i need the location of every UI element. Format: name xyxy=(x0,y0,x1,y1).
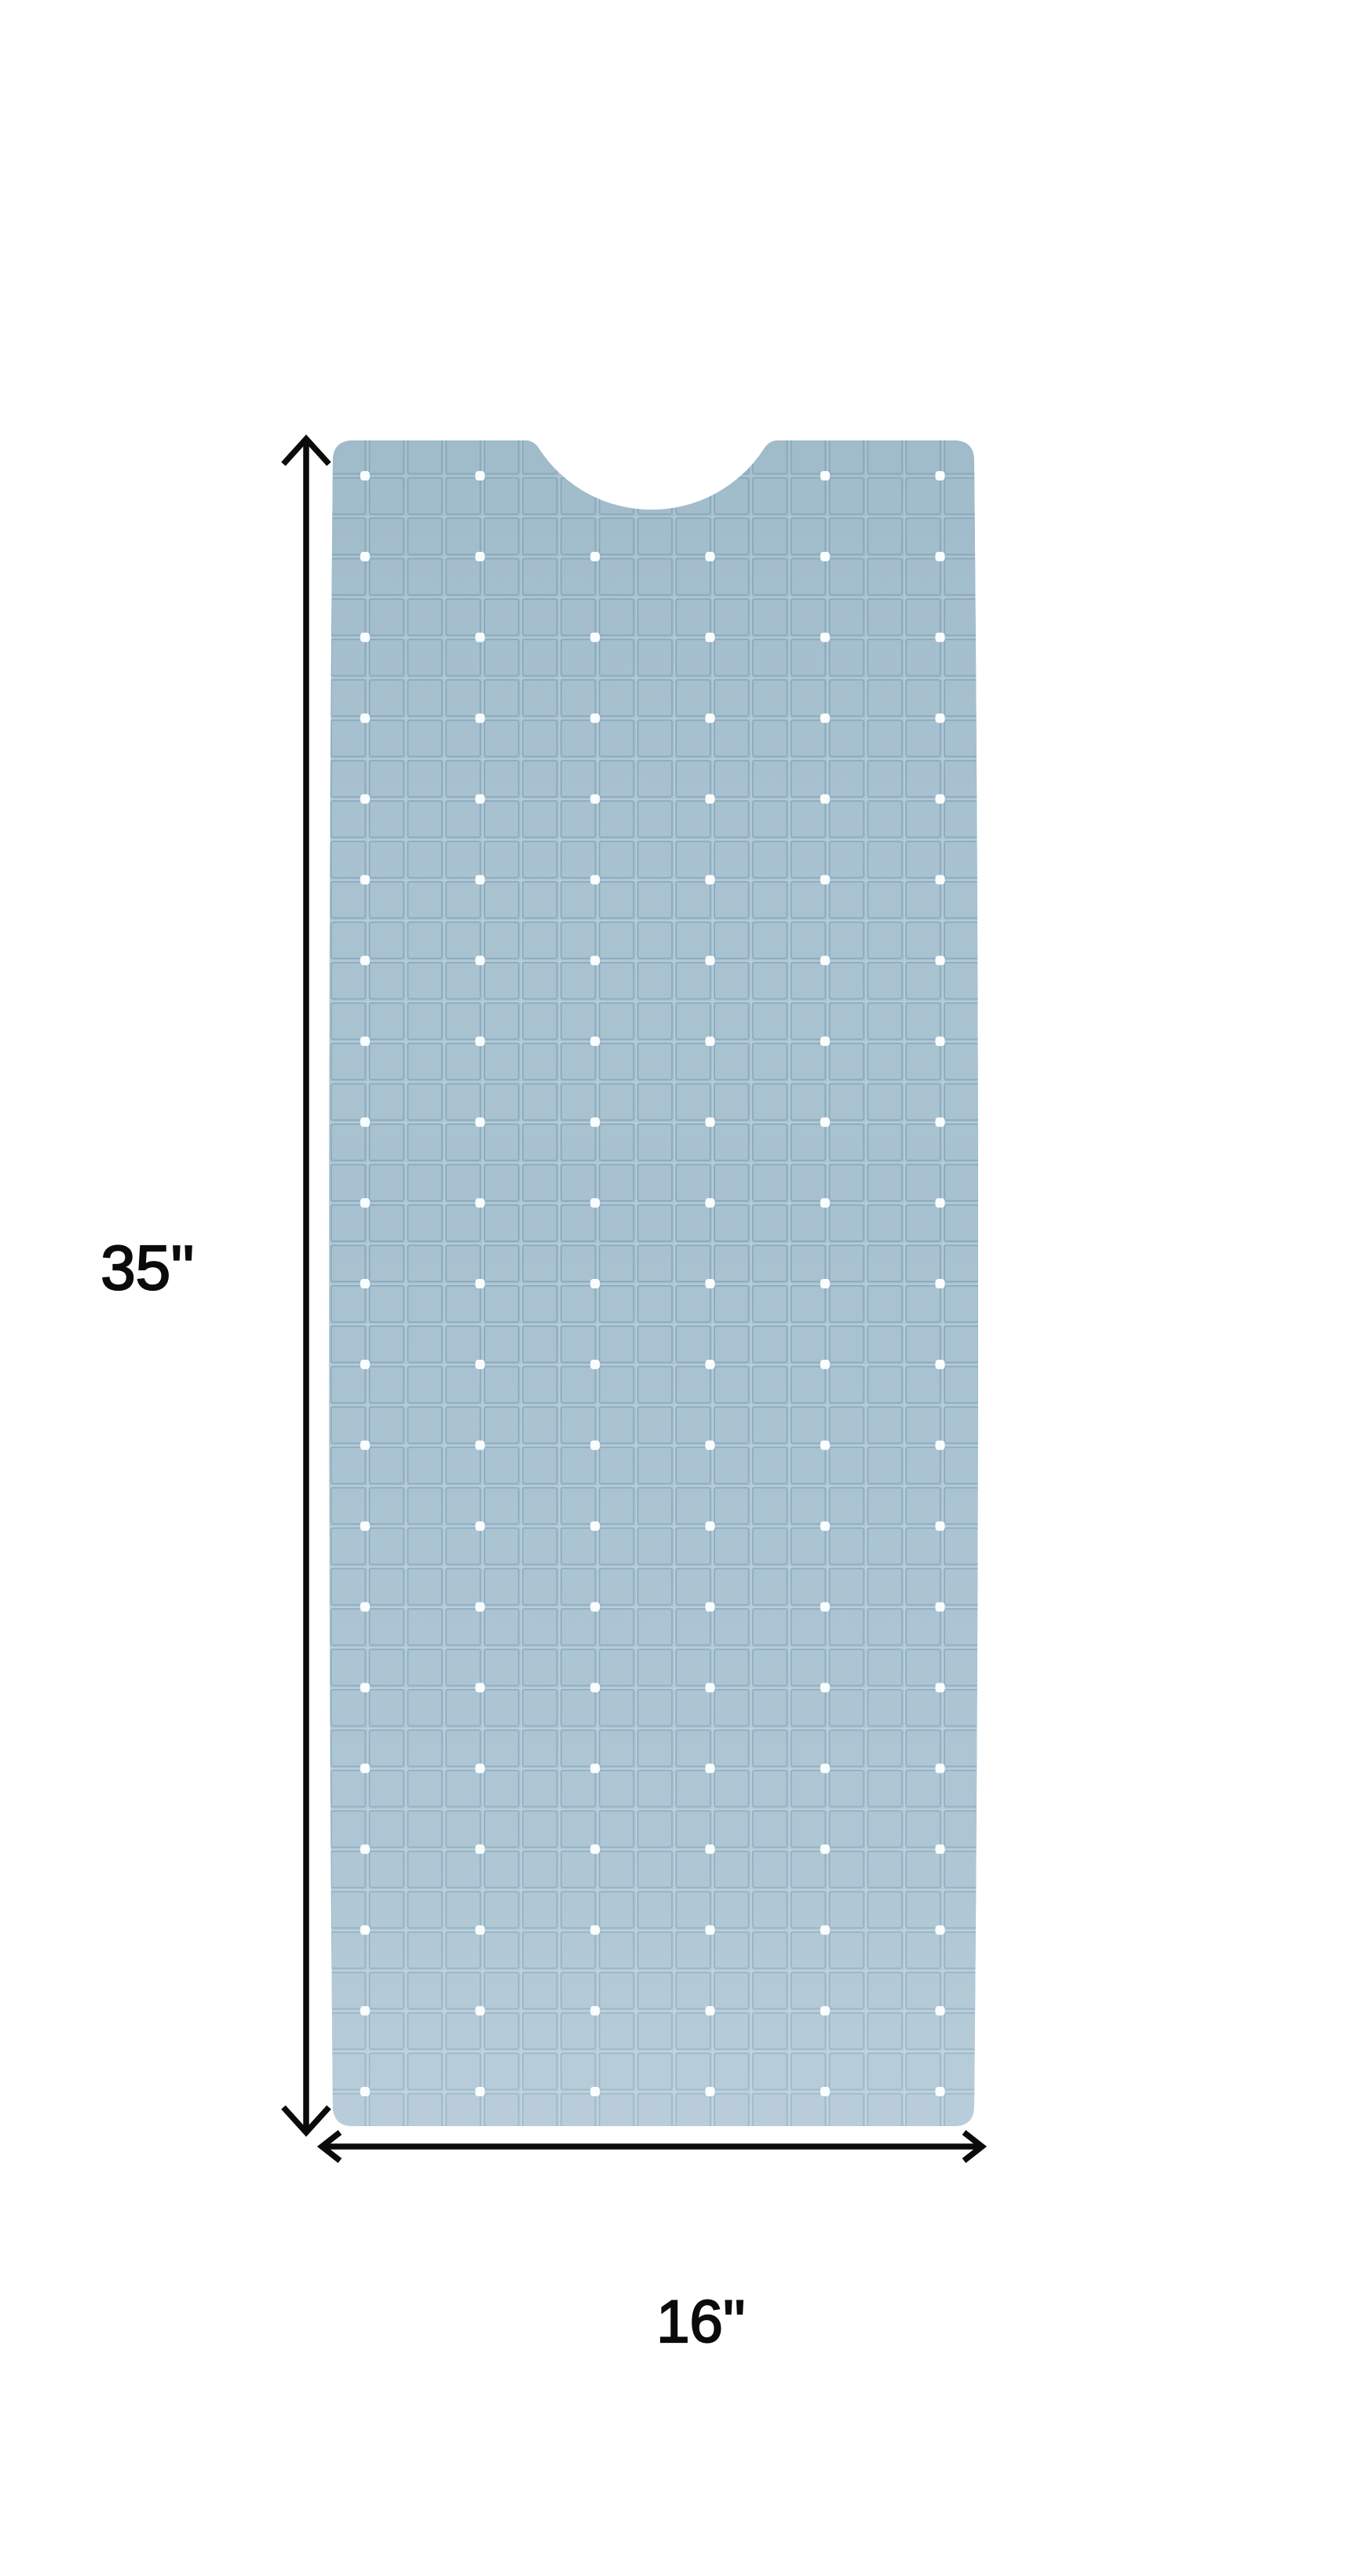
svg-text:35'': 35'' xyxy=(100,1233,195,1303)
svg-text:16'': 16'' xyxy=(656,2289,746,2355)
